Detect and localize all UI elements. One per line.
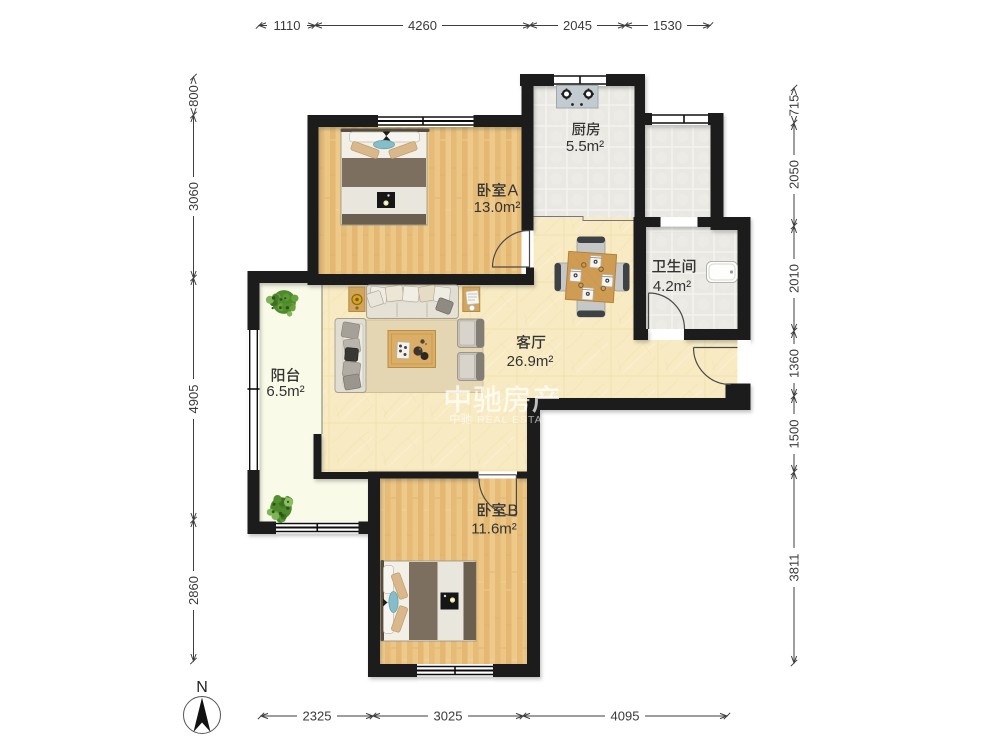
svg-text:13.0m²: 13.0m² xyxy=(474,199,521,216)
svg-text:2010: 2010 xyxy=(786,264,801,293)
svg-text:6.5m²: 6.5m² xyxy=(266,383,304,400)
svg-text:2045: 2045 xyxy=(563,18,592,33)
svg-text:A: A xyxy=(508,182,519,199)
svg-text:1500: 1500 xyxy=(786,420,801,449)
svg-text:N: N xyxy=(196,679,208,696)
svg-text:3060: 3060 xyxy=(186,182,201,211)
svg-text:2325: 2325 xyxy=(303,708,332,723)
svg-text:5.5m²: 5.5m² xyxy=(566,138,604,155)
svg-text:2050: 2050 xyxy=(786,160,801,189)
svg-text:4095: 4095 xyxy=(611,708,640,723)
svg-text:4260: 4260 xyxy=(408,18,437,33)
svg-text:REAL ESTATE: REAL ESTATE xyxy=(477,414,557,426)
svg-text:800: 800 xyxy=(186,85,201,107)
svg-text:1360: 1360 xyxy=(786,349,801,378)
svg-text:11.6m²: 11.6m² xyxy=(471,521,517,538)
svg-text:715: 715 xyxy=(786,95,801,117)
svg-text:1110: 1110 xyxy=(274,18,301,33)
svg-text:3025: 3025 xyxy=(434,708,463,723)
svg-text:B: B xyxy=(508,502,519,519)
svg-text:2860: 2860 xyxy=(186,576,201,605)
svg-text:4905: 4905 xyxy=(186,385,201,414)
svg-text:26.9m²: 26.9m² xyxy=(507,353,554,370)
svg-text:3811: 3811 xyxy=(786,554,801,582)
svg-text:4.2m²: 4.2m² xyxy=(653,278,691,295)
svg-text:1530: 1530 xyxy=(653,18,682,33)
